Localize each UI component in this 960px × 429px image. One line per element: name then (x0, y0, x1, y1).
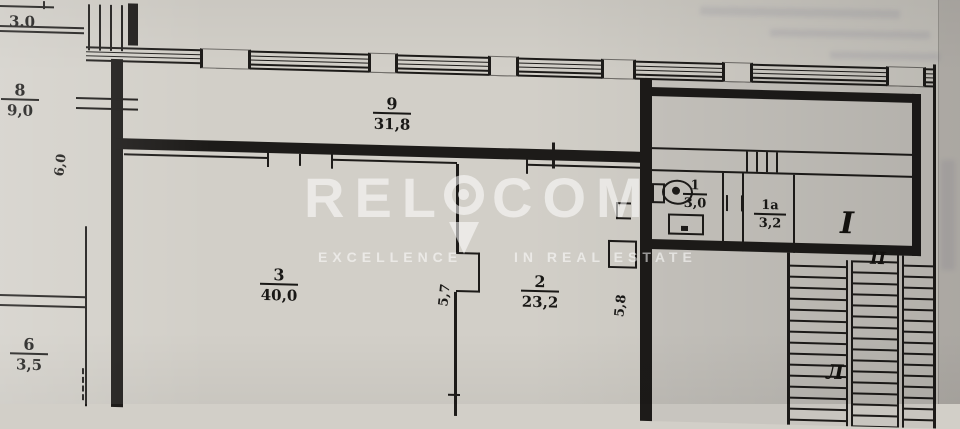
stair-tread (904, 419, 933, 422)
sink-icon (668, 213, 704, 235)
partition-wall (454, 292, 457, 416)
stair-tread (790, 309, 846, 312)
partition-wall (124, 153, 268, 159)
door-opening-dashed (82, 368, 84, 400)
room-area: 3,2 (746, 215, 794, 232)
exterior-window-wall (86, 46, 935, 88)
stair-tread (853, 315, 897, 318)
window (200, 48, 251, 69)
dimension-tick (76, 107, 138, 111)
pin-dot-icon (458, 189, 469, 200)
wall-segment (85, 226, 87, 406)
watermark-tagline-left: EXCELLENCE (318, 249, 462, 265)
stair-tread (904, 265, 933, 268)
dimension-label: 6,0 (52, 147, 70, 183)
window-mullion (746, 152, 748, 172)
room-label-top-left: 3.0 (0, 0, 50, 30)
watermark-tagline-right: IN REAL ESTATE (514, 249, 697, 265)
dimension-tick (552, 142, 555, 168)
bleed-through-mark (700, 6, 900, 18)
room-area: 3,5 (2, 354, 56, 373)
window-mullion (88, 4, 90, 50)
stair-tread (904, 287, 933, 290)
room-label-2: 2 23,2 (508, 271, 572, 311)
room-area: 9,0 (0, 100, 50, 120)
room-number: 6 (10, 335, 47, 355)
room-area: 3,0 (672, 195, 718, 212)
stair-tread (853, 282, 897, 285)
stair-tread (853, 425, 897, 427)
stair-tread (853, 304, 897, 307)
stair-tread (904, 364, 933, 367)
stair-tread (853, 381, 897, 384)
pilaster (456, 290, 480, 293)
dimension-tick (76, 97, 138, 101)
room-label-1a: 1а 3,2 (746, 194, 794, 232)
stair-tread (790, 397, 846, 400)
room-area: 31,8 (360, 113, 424, 133)
stair-tread (790, 353, 846, 356)
stair-tread (790, 265, 846, 268)
stair-tread (790, 386, 846, 389)
stair-tread (853, 414, 897, 417)
stair-tread (904, 298, 933, 301)
window (368, 53, 398, 74)
dimension-label: 5,8 (612, 288, 630, 324)
room-label-9: 9 31,8 (360, 93, 424, 133)
entrance-marker-II: II (870, 249, 886, 269)
stair-tread (904, 331, 933, 334)
room-label-6: 6 3,5 (2, 334, 56, 373)
room-label-1: 1 3,0 (672, 174, 718, 212)
window (601, 59, 636, 80)
stair-flight (853, 258, 897, 427)
dimension-label: 5,7 (436, 277, 454, 313)
stair-tread (904, 386, 933, 389)
window-mullion (110, 5, 112, 51)
stair-tread (904, 397, 933, 400)
room-number: 8 (1, 81, 38, 101)
wall-segment (0, 294, 86, 298)
right-wing-right-wall (912, 94, 921, 256)
room-number: 9 (373, 95, 410, 115)
sink-tap-icon (681, 226, 688, 231)
exterior-wall-line (933, 64, 936, 428)
stair-stringer (846, 260, 848, 426)
room-area: 40,0 (246, 284, 312, 304)
window (488, 56, 519, 77)
stair-letter-marker: Л (826, 360, 844, 384)
stair-tread (790, 287, 846, 290)
bleed-through-mark (941, 160, 955, 270)
stair-tread (853, 326, 897, 329)
stair-wall (897, 255, 899, 427)
stair-flight (904, 262, 933, 429)
window-mullion (776, 152, 778, 172)
window (722, 62, 753, 83)
stair-tread (853, 271, 897, 274)
stair-tread (790, 331, 846, 334)
stair-tread (790, 276, 846, 279)
room-area: 3.0 (0, 11, 50, 30)
room-label-3: 3 40,0 (246, 264, 312, 304)
stair-tread (853, 359, 897, 362)
wall-segment (0, 30, 84, 34)
stair-tread (904, 276, 933, 279)
stair-tread (904, 309, 933, 312)
dimension-tick (448, 394, 460, 396)
stair-tread (790, 342, 846, 345)
room-area: 23,2 (508, 291, 572, 311)
room-number: 1 (683, 179, 706, 196)
window-mullion (756, 152, 758, 172)
window-mullion (121, 5, 123, 51)
stair-tread (904, 342, 933, 345)
wc-right-wall (722, 173, 724, 243)
watermark-brand-right: COM (492, 170, 653, 226)
stair-tread (790, 419, 846, 422)
stair-tread (853, 293, 897, 296)
scanned-floor-plan: { "colors": {"paper": "#d2cfc8", "wall":… (0, 0, 960, 404)
window-mullion (99, 5, 101, 51)
partition-wall (332, 159, 457, 164)
stair-tread (790, 298, 846, 301)
wall-segment (0, 304, 86, 308)
door-jamb-tick (299, 154, 301, 166)
stair-tread (904, 353, 933, 356)
stair-tread (904, 375, 933, 378)
door-jamb-tick (267, 151, 269, 167)
window (886, 66, 926, 87)
entrance-marker-I: I (840, 206, 854, 241)
door-jamb-tick (726, 195, 728, 211)
stair-tread (853, 337, 897, 340)
room-number: 3 (260, 266, 297, 286)
room-number: 1а (754, 199, 785, 216)
stair-tread (790, 320, 846, 323)
room-number: 2 (521, 273, 558, 293)
watermark-brand-left: REL (304, 170, 446, 226)
stair-flight (790, 261, 846, 426)
window-mullion (766, 152, 768, 172)
stair-tread (853, 392, 897, 395)
wall-stub (128, 3, 138, 45)
stair-tread (790, 408, 846, 411)
room-number (0, 0, 54, 8)
stair-tread (853, 370, 897, 373)
stair-tread (904, 408, 933, 411)
stair-tread (904, 320, 933, 323)
stair-tread (853, 348, 897, 351)
room-label-8: 8 9,0 (0, 80, 50, 120)
left-main-wall (111, 59, 123, 407)
room1a-left-wall (742, 173, 744, 251)
